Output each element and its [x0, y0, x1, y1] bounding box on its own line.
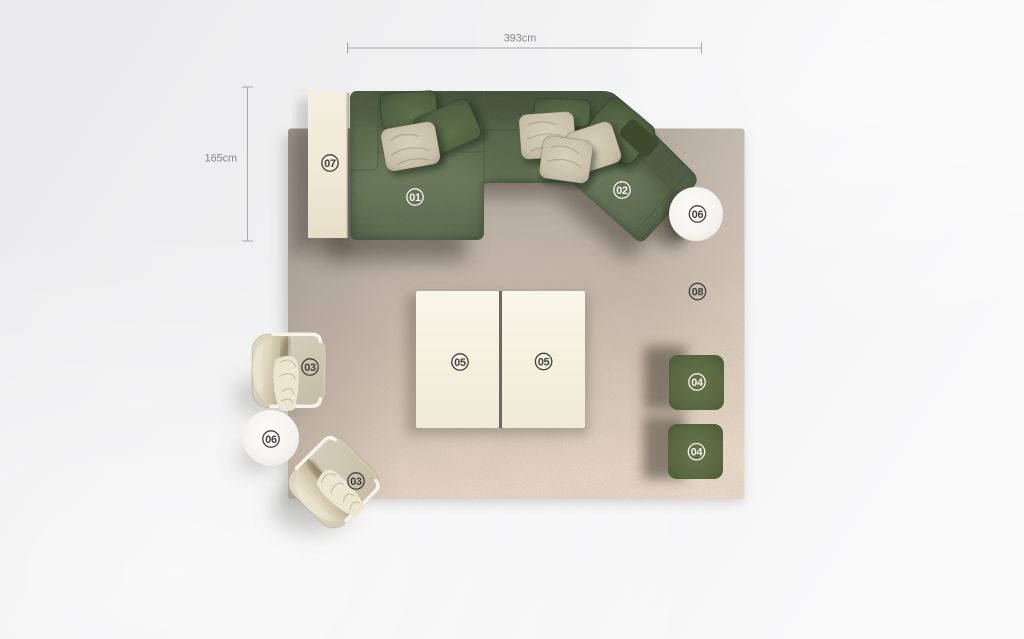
svg-text:03: 03 [304, 362, 316, 374]
svg-text:03: 03 [350, 476, 362, 488]
svg-text:01: 01 [409, 192, 421, 204]
svg-text:06: 06 [265, 434, 277, 446]
svg-text:04: 04 [691, 377, 703, 389]
svg-text:08: 08 [692, 286, 704, 298]
svg-text:05: 05 [538, 356, 550, 368]
svg-text:07: 07 [324, 158, 336, 170]
svg-text:165cm: 165cm [205, 153, 237, 165]
svg-text:02: 02 [616, 185, 628, 197]
svg-text:393cm: 393cm [504, 33, 536, 45]
svg-text:04: 04 [691, 447, 703, 459]
svg-text:05: 05 [454, 357, 466, 369]
svg-text:06: 06 [692, 209, 704, 221]
